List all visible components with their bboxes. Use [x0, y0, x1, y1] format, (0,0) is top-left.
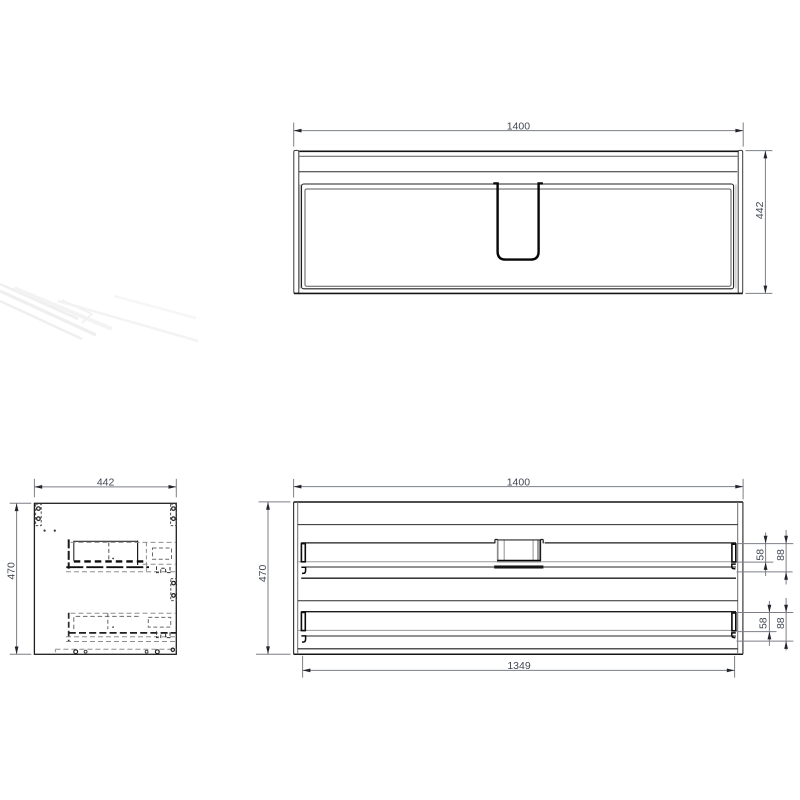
svg-text:1400: 1400	[507, 476, 531, 488]
svg-text:58: 58	[754, 549, 766, 561]
svg-text:1349: 1349	[507, 660, 531, 672]
svg-text:58: 58	[757, 617, 769, 629]
svg-text:1400: 1400	[507, 120, 531, 132]
svg-text:88: 88	[775, 549, 787, 561]
svg-text:470: 470	[5, 562, 17, 580]
svg-text:442: 442	[97, 477, 115, 489]
svg-text:88: 88	[775, 617, 787, 629]
svg-text:442: 442	[754, 201, 766, 219]
svg-text:470: 470	[257, 564, 269, 582]
